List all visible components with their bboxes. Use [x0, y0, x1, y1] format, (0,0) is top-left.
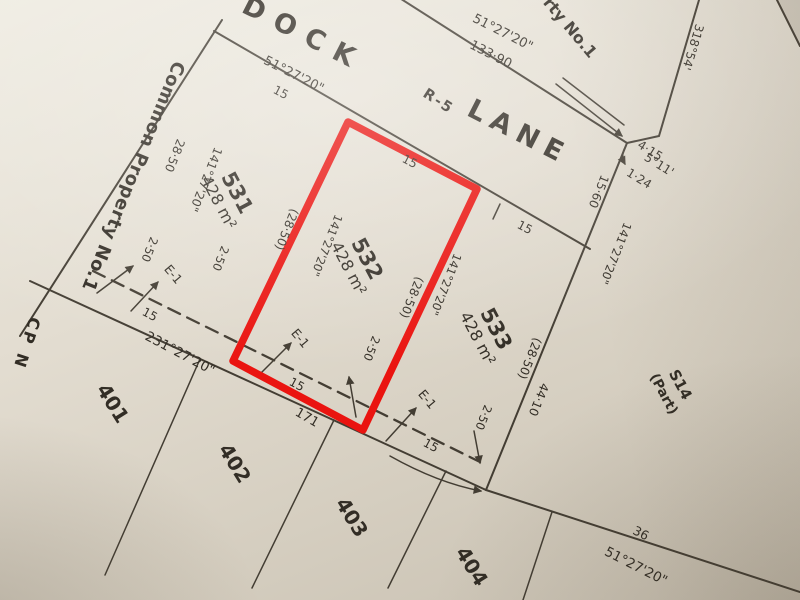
frontage-531: 15 [271, 83, 291, 102]
corner-leader-curve [390, 456, 481, 491]
lot-401-number: 401 [92, 379, 134, 427]
common-property-leader-arrow-2 [563, 78, 624, 125]
cp-left-label: CP N [9, 315, 44, 373]
easement-id-1: E-1 [161, 261, 186, 286]
lot-404-number: 404 [451, 542, 493, 590]
easement-arrow-6 [474, 431, 480, 463]
bearing-rear: 231°27'20" [142, 328, 217, 378]
bearing-south: 51°27'20" [602, 544, 670, 589]
common-property-leader-arrow [556, 84, 622, 136]
survey-plan-photo: DOCK R-5 LANE Common Property No.1 rty N… [0, 0, 800, 600]
common-property-topright-label: rty No.1 [539, 0, 601, 62]
easement-arrow-3 [261, 343, 291, 373]
easement-arrow-5 [386, 408, 416, 441]
bearing-northeast: 318°54' [679, 22, 706, 72]
bearing-east: 141°27'20" [597, 221, 634, 287]
lot-403-number: 403 [331, 493, 373, 541]
bearing-dock-lane-left: 51°27'20" [261, 53, 326, 96]
easement-width-1: 2·50 [138, 235, 161, 264]
rear-15-right: 15 [421, 436, 441, 456]
corner-distance-1-24: 1·24 [624, 166, 654, 192]
road-classification: R-5 [420, 86, 457, 118]
common-property-left-label: Common Property No.1 [77, 58, 189, 294]
lot-402-number: 402 [214, 439, 256, 487]
frontage-tick [493, 204, 500, 219]
lot404-east-division-line [523, 512, 552, 600]
easement-width-2: 2·50 [209, 244, 232, 273]
street-name-lane: LANE [462, 93, 575, 171]
depth-531-west: 28·50 [162, 137, 188, 174]
easement-width-3: 2·50 [360, 334, 383, 363]
easement-id-2: E-1 [288, 325, 313, 350]
frontage-533: 15 [515, 218, 535, 237]
easement-width-4: 2·50 [472, 403, 495, 432]
plan-drawing: DOCK R-5 LANE Common Property No.1 rty N… [0, 0, 800, 600]
distance-east-total: 44·10 [526, 381, 552, 418]
easement-id-3: E-1 [415, 386, 440, 411]
distance-36: 36 [631, 523, 652, 544]
lot403-404-division-line [388, 471, 446, 588]
rear-15-left: 15 [140, 305, 160, 325]
street-name-dock: DOCK [237, 0, 371, 79]
lot402-403-division-line [252, 420, 334, 588]
